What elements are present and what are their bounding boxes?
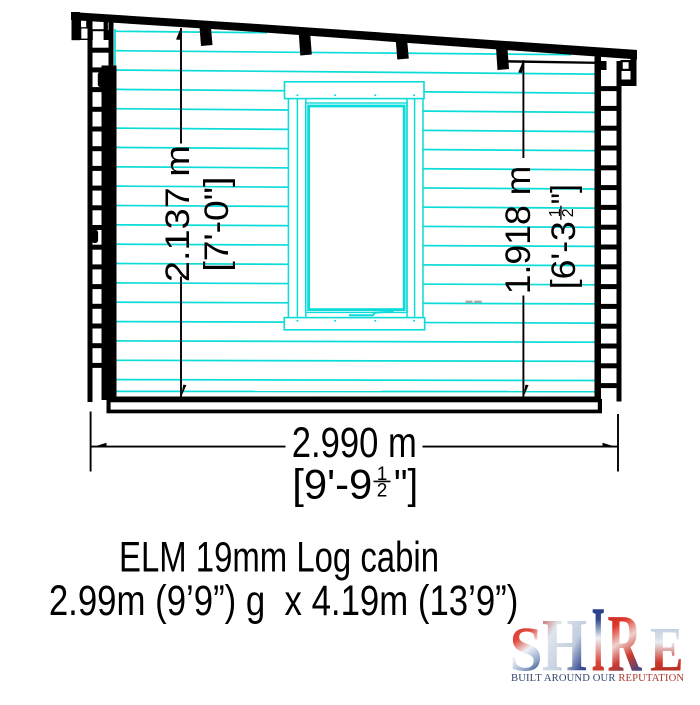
svg-text:BUILT AROUND OUR REPUTATION: BUILT AROUND OUR REPUTATION xyxy=(511,673,684,684)
svg-text:1.918 m: 1.918 m xyxy=(499,166,538,295)
svg-text:ELM 19mm Log cabin: ELM 19mm Log cabin xyxy=(119,533,439,581)
svg-text:2.99m (9’9”) g x 4.19m (13’9”: 2.99m (9’9”) g x 4.19m (13’9”) xyxy=(49,577,519,625)
svg-text:2: 2 xyxy=(560,208,577,217)
svg-text:2.990 m: 2.990 m xyxy=(292,419,417,467)
svg-text:2: 2 xyxy=(377,480,388,501)
svg-text:[7'-0"]: [7'-0"] xyxy=(198,177,236,272)
svg-text:"]: "] xyxy=(545,184,583,204)
svg-text:[9'-9: [9'-9 xyxy=(292,461,372,508)
svg-text:"]: "] xyxy=(394,461,418,508)
svg-text:2.137 m: 2.137 m xyxy=(159,145,197,282)
svg-text:[6'-3: [6'-3 xyxy=(545,221,583,289)
